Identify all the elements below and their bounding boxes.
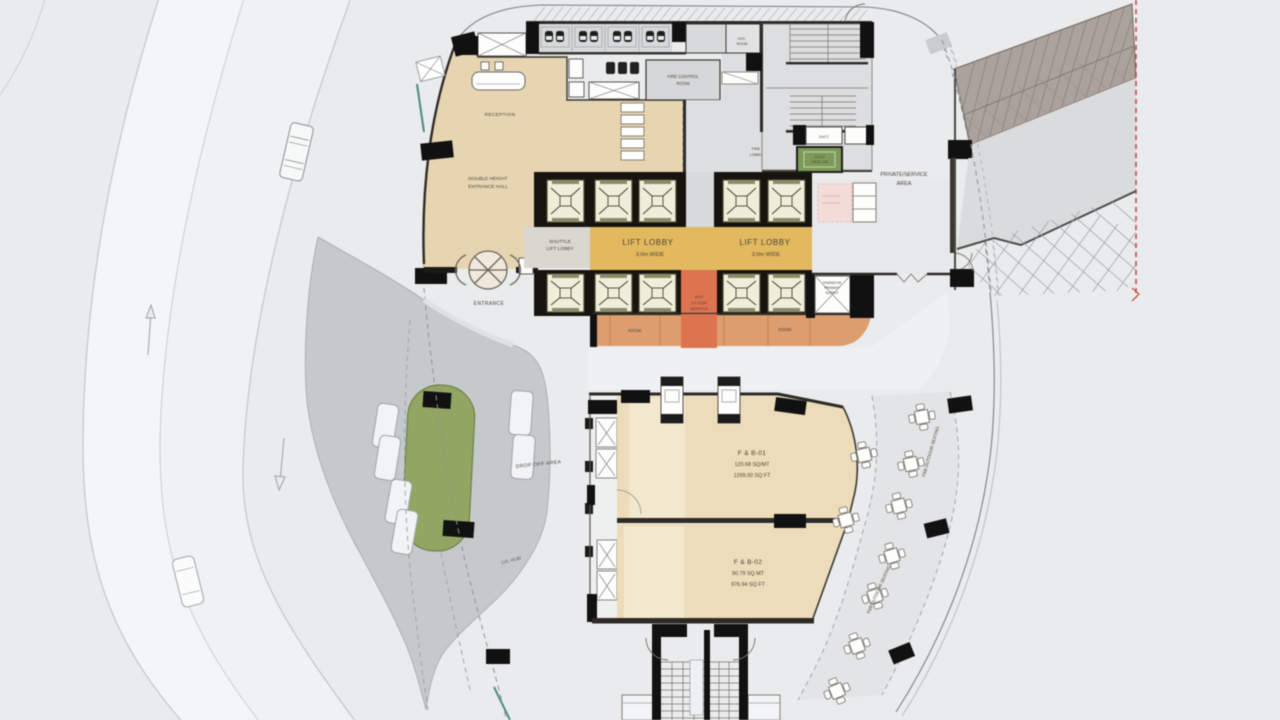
svg-text:SERVICE: SERVICE: [690, 306, 708, 311]
svg-text:ENTRANCE: ENTRANCE: [474, 301, 505, 307]
svg-text:ELECT: ELECT: [815, 155, 825, 159]
svg-text:ROOM: ROOM: [676, 81, 690, 86]
svg-text:1299.00 SQ FT: 1299.00 SQ FT: [734, 473, 772, 479]
svg-text:SHUTTLE: SHUTTLE: [549, 239, 571, 245]
svg-text:DOUBLE HEIGHT: DOUBLE HEIGHT: [468, 176, 507, 182]
svg-text:3.0m WIDE: 3.0m WIDE: [752, 252, 781, 258]
svg-text:ENTRANCE HALL: ENTRANCE HALL: [468, 184, 508, 190]
svg-text:PANEL RM: PANEL RM: [812, 160, 828, 164]
svg-text:AREA: AREA: [897, 181, 912, 187]
svg-text:SUPPLY: SUPPLY: [825, 291, 839, 295]
svg-text:FIRE CONTROL: FIRE CONTROL: [667, 74, 699, 79]
svg-text:ROOM: ROOM: [737, 42, 748, 46]
svg-text:RECEPTION: RECEPTION: [485, 112, 516, 118]
svg-text:976.94 SQ FT: 976.94 SQ FT: [731, 582, 766, 588]
svg-text:90.79 SQ MT: 90.79 SQ MT: [732, 571, 765, 577]
svg-text:120.68 SQ/MT: 120.68 SQ/MT: [734, 462, 770, 468]
svg-text:DUCT: DUCT: [819, 135, 830, 139]
svg-text:AHU: AHU: [695, 294, 704, 299]
svg-text:PRIVATE/SERVICE: PRIVATE/SERVICE: [880, 172, 928, 178]
svg-text:LIFT LOBBY: LIFT LOBBY: [622, 238, 673, 247]
svg-text:PRIMARY: PRIMARY: [824, 286, 840, 290]
svg-text:LIFT LOBBY: LIFT LOBBY: [739, 238, 790, 247]
svg-text:F & B-02: F & B-02: [734, 559, 762, 566]
svg-text:LIFT LOBBY: LIFT LOBBY: [546, 246, 574, 252]
svg-text:3.5 SQM: 3.5 SQM: [691, 300, 707, 305]
svg-text:KIOSK: KIOSK: [778, 327, 791, 332]
svg-text:KIOSK: KIOSK: [628, 328, 641, 333]
svg-text:FIRE: FIRE: [752, 147, 761, 151]
svg-text:F & B-01: F & B-01: [738, 450, 766, 457]
svg-text:LOBBY: LOBBY: [750, 153, 763, 157]
svg-text:TRANSFOR: TRANSFOR: [823, 281, 842, 285]
svg-text:3.0m WIDE: 3.0m WIDE: [636, 252, 665, 258]
svg-text:HYD.: HYD.: [738, 37, 746, 41]
